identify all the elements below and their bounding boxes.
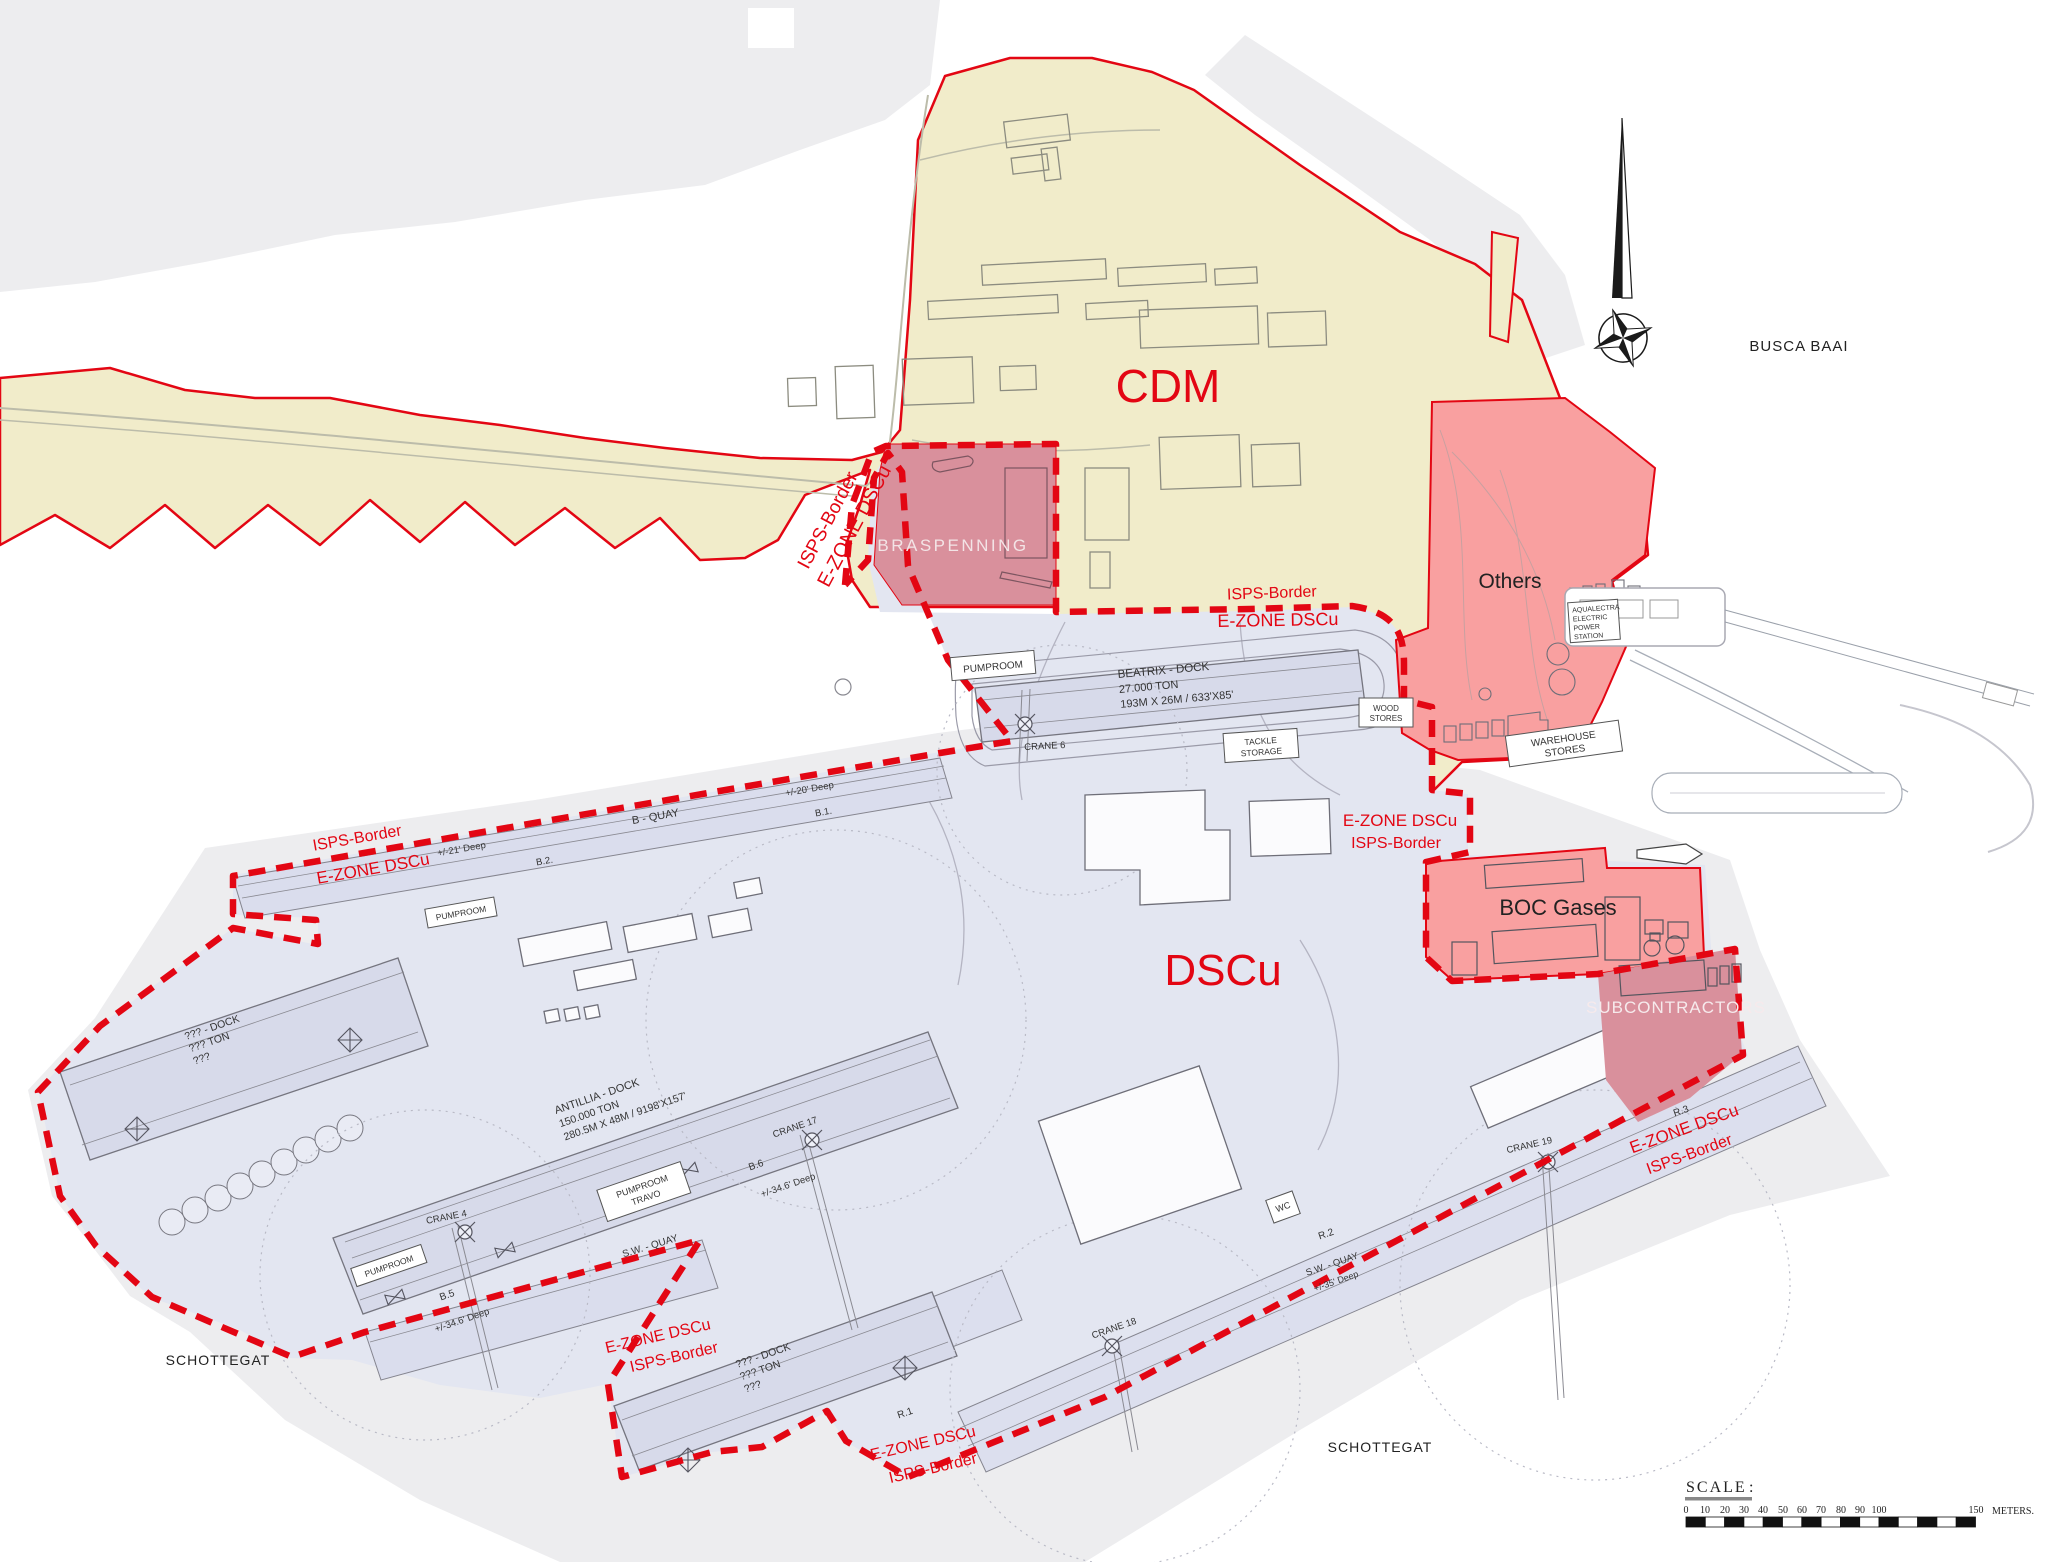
scale-tick: 30 [1739,1505,1749,1516]
map-canvas: PUMPROOM PUMPROOM PUMPROOM TRAVO PUMPROO… [0,0,2048,1562]
building [835,365,875,418]
north-arrow-light [1622,118,1632,298]
scale-tick: 70 [1816,1505,1826,1516]
building [584,1005,600,1019]
scale-seg [1686,1517,1705,1527]
building [544,1009,560,1023]
scale-bar: SCALE : 0 10 20 30 40 50 60 [1684,1479,2034,1527]
pontoon [182,1197,208,1223]
gray-area-north [0,0,940,292]
dscu-label: DSCu [1164,946,1281,995]
aqualectra-box: AQUALECTRA ELECTRIC POWER STATION [1568,599,1622,643]
scale-segments [1686,1517,1976,1527]
scale-seg [1802,1517,1821,1527]
scale-tick-end: 150 [1969,1505,1984,1516]
scale-seg [1705,1517,1724,1527]
isps-border-label: ISPS-Border [1227,583,1318,603]
scale-seg [1898,1517,1917,1527]
others-label: Others [1478,570,1541,593]
wood-label: WOOD [1373,704,1399,713]
cdm-label: CDM [1116,360,1221,412]
scale-tick: 60 [1797,1505,1807,1516]
scale-seg [1725,1517,1744,1527]
scale-title-underline [1685,1497,1752,1501]
scale-unit: METERS. [1992,1506,2034,1517]
scale-title: SCALE [1686,1479,1747,1496]
schottegat-south-label: SCHOTTEGAT [1328,1439,1433,1455]
gray-notch [748,8,794,48]
scale-tick: 90 [1855,1505,1865,1516]
building [564,1007,580,1021]
crane-icon [1102,1336,1122,1356]
pontoon [159,1209,185,1235]
compass-star-outline [1585,300,1662,377]
scale-tick: 10 [1700,1505,1710,1516]
scale-tick: 20 [1720,1505,1730,1516]
scale-tick: 80 [1836,1505,1846,1516]
shore-hook [1900,705,2033,852]
subcontractors-label: SUBCONTRACTORS [1586,998,1766,1017]
schottegat-west-label: SCHOTTEGAT [166,1352,271,1368]
pier-end-box [1982,682,2017,706]
crane-icon [1015,714,1035,734]
scale-seg [1879,1517,1898,1527]
scale-seg [1840,1517,1859,1527]
scale-seg [1918,1517,1937,1527]
braspenning-label: BRASPENNING [877,536,1028,555]
scale-tick: 50 [1778,1505,1788,1516]
building [788,378,817,407]
boc-gases-label: BOC Gases [1499,895,1616,920]
harbor-site-map: PUMPROOM PUMPROOM PUMPROOM TRAVO PUMPROO… [0,0,2048,1562]
compass-rose-icon [1585,300,1662,377]
ezone-dscu-label: E-ZONE DSCu [1217,609,1338,631]
scale-tick: 0 [1684,1505,1689,1516]
stores-label: STORES [1370,714,1403,723]
building [1249,799,1331,857]
crane-icon [802,1130,822,1150]
scale-seg [1860,1517,1879,1527]
wood-stores-box: WOOD STORES [1359,698,1413,727]
tackle-storage-box: TACKLE STORAGE [1223,728,1299,762]
scale-seg [1937,1517,1956,1527]
scale-colon: : [1749,1479,1753,1496]
mooring-ring [835,679,851,695]
scale-tick-labels: 0 10 20 30 40 50 60 70 80 90 100 150 MET… [1684,1505,2034,1517]
crane6-label: CRANE 6 [1024,740,1066,753]
pontoon [337,1115,363,1141]
pier-end [1982,682,2017,706]
north-indicator [1585,118,1662,376]
scale-seg [1763,1517,1782,1527]
scale-seg [1956,1517,1975,1527]
north-arrow-dark [1612,118,1622,298]
crane-icon [455,1222,475,1242]
scale-seg [1744,1517,1763,1527]
scale-tick: 100 [1872,1505,1887,1516]
scale-seg [1783,1517,1802,1527]
isps-border-label: ISPS-Border [1351,835,1441,852]
ezone-dscu-label: E-ZONE DSCu [1343,811,1457,830]
scale-tick: 40 [1758,1505,1768,1516]
busca-baai-label: BUSCA BAAI [1749,338,1848,355]
scale-seg [1821,1517,1840,1527]
